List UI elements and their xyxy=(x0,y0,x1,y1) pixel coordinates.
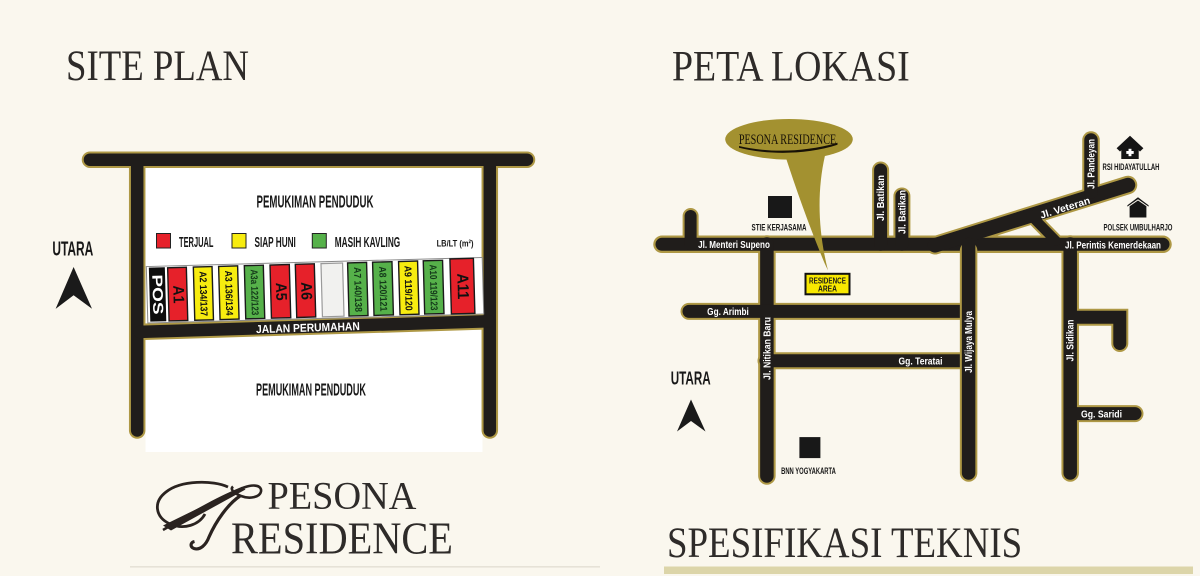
svg-text:RESIDENCE: RESIDENCE xyxy=(231,515,453,564)
svg-text:UTARA: UTARA xyxy=(52,237,93,260)
svg-text:SITE PLAN: SITE PLAN xyxy=(66,41,249,89)
svg-text:PESONA RESIDENCE: PESONA RESIDENCE xyxy=(739,131,836,147)
svg-text:A9 119/120: A9 119/120 xyxy=(402,266,415,311)
svg-text:Jl. Batikan: Jl. Batikan xyxy=(896,190,908,234)
svg-text:A3 136/134: A3 136/134 xyxy=(223,270,235,316)
svg-text:Jl. Wijaya Mulya: Jl. Wijaya Mulya xyxy=(963,310,974,373)
svg-text:Jl. Pandeyan: Jl. Pandeyan xyxy=(1086,139,1097,189)
svg-text:PEMUKIMAN PENDUDUK: PEMUKIMAN PENDUDUK xyxy=(256,380,366,400)
svg-text:STIE KERJASAMA: STIE KERJASAMA xyxy=(752,222,807,233)
svg-text:A1: A1 xyxy=(169,285,186,303)
svg-text:A5: A5 xyxy=(272,282,289,300)
svg-text:A7 140/138: A7 140/138 xyxy=(352,267,364,312)
svg-text:A10 119/123: A10 119/123 xyxy=(427,264,439,310)
svg-text:A6: A6 xyxy=(297,282,314,300)
svg-text:PETA LOKASI: PETA LOKASI xyxy=(672,42,910,90)
svg-text:Jl. Nitikan Baru: Jl. Nitikan Baru xyxy=(762,317,773,380)
svg-text:Jl. Menteri Supeno: Jl. Menteri Supeno xyxy=(698,239,770,250)
svg-text:A3a 122/123: A3a 122/123 xyxy=(248,269,260,315)
svg-text:POLSEK UMBULHARJO: POLSEK UMBULHARJO xyxy=(1104,222,1173,233)
svg-text:TERJUAL: TERJUAL xyxy=(179,233,213,251)
svg-text:Jl. Perintis Kemerdekaan: Jl. Perintis Kemerdekaan xyxy=(1065,239,1161,250)
svg-text:PEMUKIMAN PENDUDUK: PEMUKIMAN PENDUDUK xyxy=(257,193,374,213)
svg-text:Gg. Saridi: Gg. Saridi xyxy=(1081,409,1122,420)
svg-text:BNN YOGYAKARTA: BNN YOGYAKARTA xyxy=(781,465,836,476)
svg-text:Jl. Sidikan: Jl. Sidikan xyxy=(1065,319,1076,361)
svg-text:Jl. Batikan: Jl. Batikan xyxy=(876,175,887,221)
svg-text:A2 134/137: A2 134/137 xyxy=(197,271,209,316)
svg-text:MASIH KAVLING: MASIH KAVLING xyxy=(335,233,400,250)
svg-text:RSI HIDAYATULLAH: RSI HIDAYATULLAH xyxy=(1103,161,1160,172)
svg-text:SIAP HUNI: SIAP HUNI xyxy=(255,233,296,250)
svg-text:A11: A11 xyxy=(453,273,471,300)
svg-text:SPESIFIKASI TEKNIS: SPESIFIKASI TEKNIS xyxy=(667,518,1022,566)
svg-text:LB/LT (m²): LB/LT (m²) xyxy=(437,238,474,249)
svg-text:Gg. Teratai: Gg. Teratai xyxy=(899,356,943,367)
svg-text:AREA: AREA xyxy=(818,284,838,294)
svg-text:PESONA: PESONA xyxy=(268,474,417,518)
svg-text:A8 120/121: A8 120/121 xyxy=(377,266,389,311)
svg-text:POS: POS xyxy=(149,274,166,314)
svg-text:UTARA: UTARA xyxy=(671,369,711,389)
svg-text:Gg. Arimbi: Gg. Arimbi xyxy=(707,306,749,317)
